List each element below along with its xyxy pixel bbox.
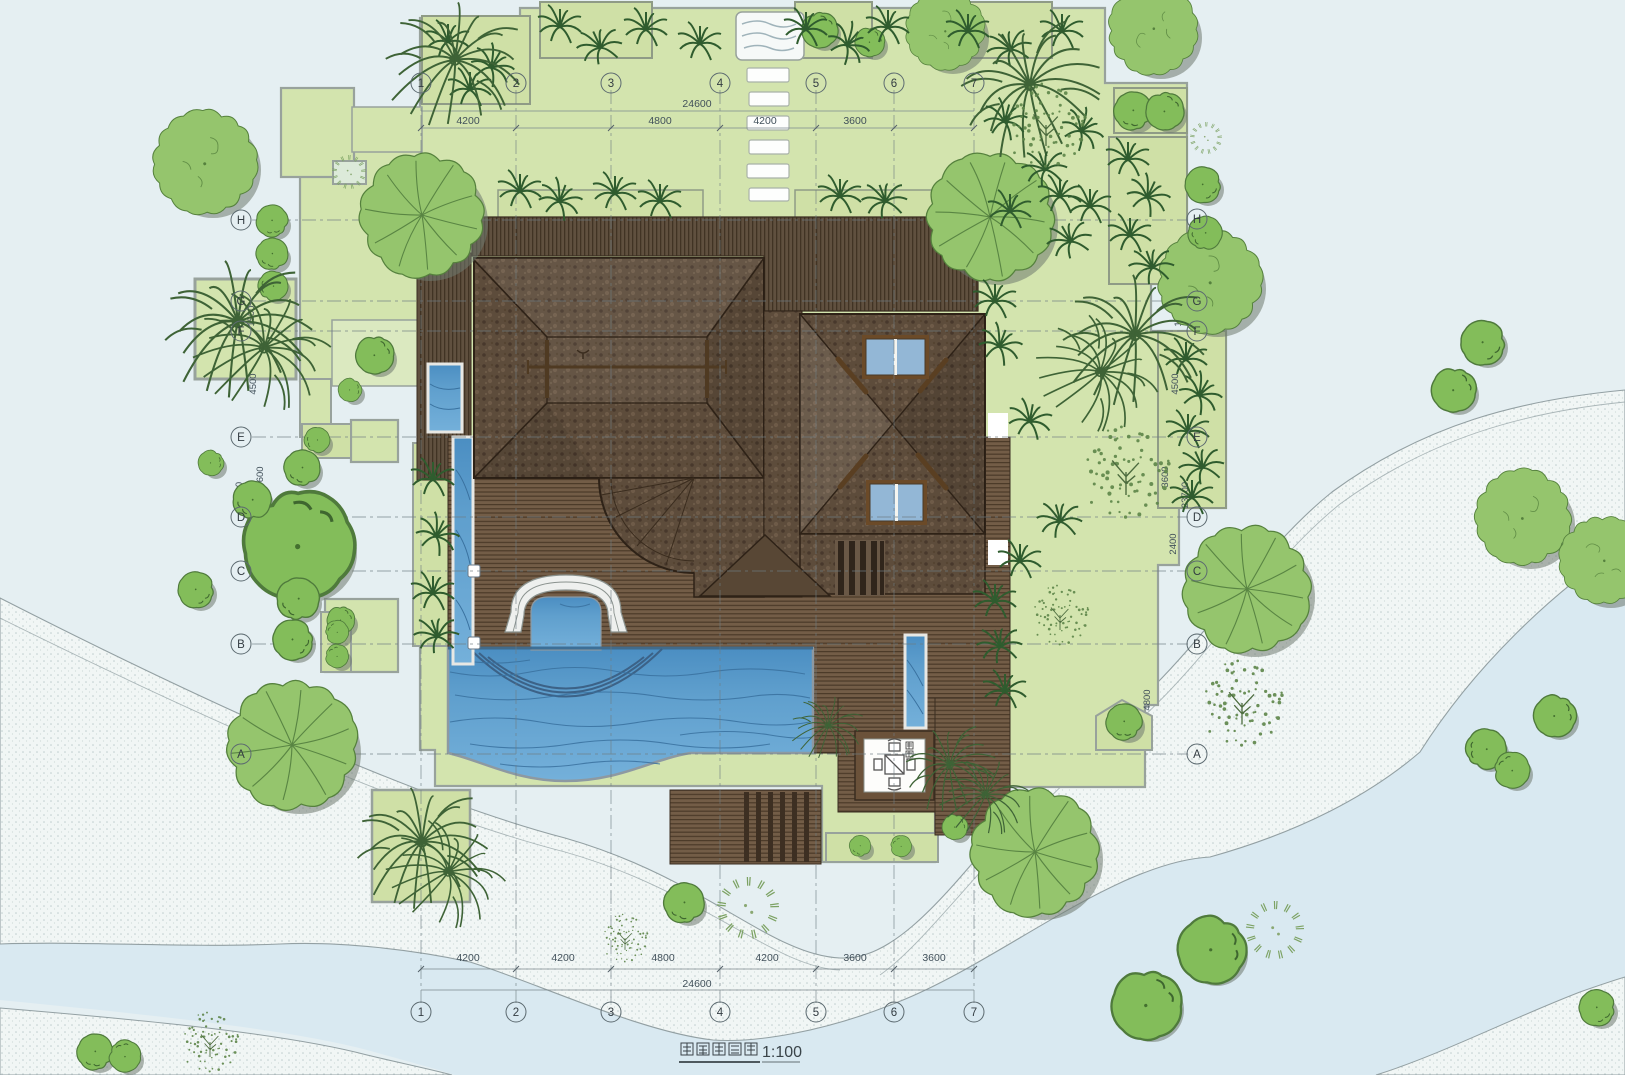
svg-text:A: A [1193, 749, 1201, 761]
svg-text:24600: 24600 [682, 978, 711, 990]
svg-text:D: D [1193, 512, 1201, 524]
svg-text:C: C [237, 566, 245, 578]
svg-text:1: 1 [418, 78, 424, 90]
svg-text:4800: 4800 [651, 952, 675, 964]
svg-text:2: 2 [513, 78, 519, 90]
svg-text:3600: 3600 [922, 952, 946, 964]
svg-text:H: H [237, 215, 245, 227]
svg-text:4200: 4200 [551, 952, 575, 964]
svg-text:G: G [1193, 296, 1202, 308]
svg-text:4500: 4500 [248, 373, 259, 394]
svg-text:C: C [1193, 566, 1201, 578]
svg-text:B: B [237, 639, 245, 651]
svg-text:G: G [237, 296, 246, 308]
svg-text:D: D [237, 512, 245, 524]
svg-text:E: E [237, 432, 245, 444]
svg-text:4200: 4200 [755, 952, 779, 964]
svg-text:3: 3 [608, 78, 614, 90]
svg-text:4200: 4200 [753, 115, 777, 127]
svg-text:3600: 3600 [1160, 466, 1171, 487]
svg-text:24600: 24600 [682, 98, 711, 110]
svg-text:5: 5 [813, 78, 819, 90]
svg-text:2400: 2400 [1168, 533, 1179, 554]
svg-text:6: 6 [891, 1007, 897, 1019]
svg-text:5: 5 [813, 1007, 819, 1019]
svg-text:4: 4 [717, 1007, 724, 1019]
svg-text:B: B [1193, 639, 1201, 651]
svg-text:3600: 3600 [843, 115, 867, 127]
svg-text:7: 7 [971, 78, 977, 90]
svg-text:1:100: 1:100 [762, 1044, 802, 1061]
svg-text:1: 1 [418, 1007, 424, 1019]
svg-text:4800: 4800 [648, 115, 672, 127]
svg-text:F: F [1193, 326, 1200, 338]
svg-text:A: A [237, 749, 245, 761]
svg-text:4: 4 [717, 78, 724, 90]
svg-text:4500: 4500 [1170, 373, 1181, 394]
svg-text:H: H [1193, 214, 1201, 226]
svg-text:3600: 3600 [843, 952, 867, 964]
svg-text:6: 6 [891, 78, 897, 90]
svg-text:E: E [1193, 432, 1201, 444]
svg-text:7: 7 [971, 1007, 977, 1019]
svg-text:4800: 4800 [1142, 689, 1153, 710]
svg-text:3: 3 [608, 1007, 614, 1019]
svg-text:F: F [237, 326, 244, 338]
svg-text:4200: 4200 [456, 115, 480, 127]
svg-text:4200: 4200 [456, 952, 480, 964]
svg-text:2: 2 [513, 1007, 519, 1019]
